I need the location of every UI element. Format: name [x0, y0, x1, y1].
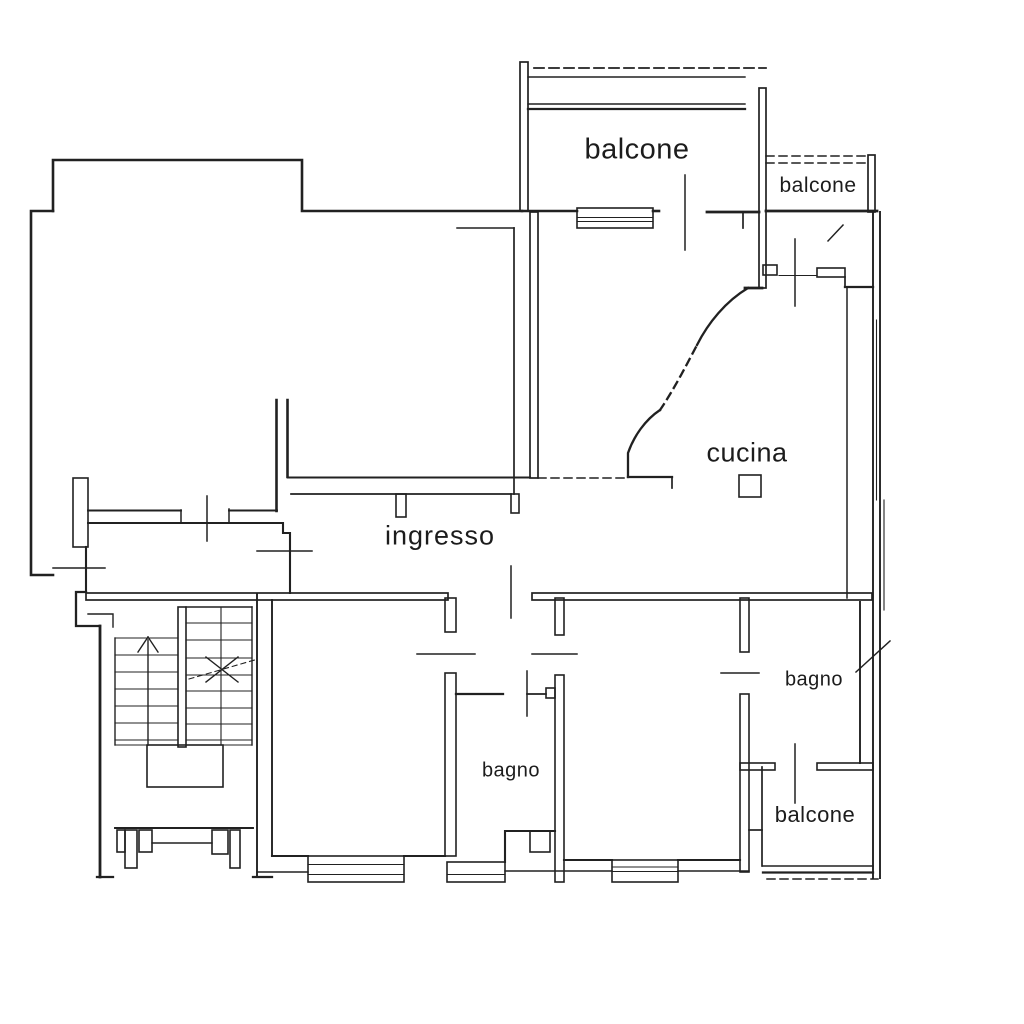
label-balcone-top: balcone — [584, 134, 689, 167]
window-break-tick — [828, 225, 843, 241]
label-ingresso: ingresso — [385, 521, 495, 552]
label-cucina: cucina — [706, 438, 787, 469]
stair-bedroom-wall — [253, 594, 272, 877]
south-facade — [257, 831, 749, 882]
stair-direction-arrow — [138, 637, 158, 745]
stair-break-x — [206, 657, 238, 682]
label-bagno-center: bagno — [482, 760, 540, 783]
stair-stringer — [178, 607, 186, 747]
curved-wall — [697, 288, 748, 345]
living-top-wall — [522, 175, 759, 250]
floorplan-page: balcone balcone cucina ingresso bagno ba… — [0, 0, 1024, 1024]
label-balcone-bottom-right: balcone — [775, 802, 856, 828]
pilaster — [530, 831, 550, 852]
exterior-walls — [31, 160, 522, 575]
kitchen-balcony-door — [763, 239, 873, 306]
window-bathroom-center — [447, 862, 505, 882]
entry-porch — [115, 828, 253, 868]
hall-bedroom-wall — [86, 566, 872, 618]
balcony-top-right — [766, 155, 877, 241]
balcony-top — [520, 62, 766, 288]
bathroom-right-walls — [740, 602, 873, 803]
window-bedroom-left — [308, 856, 404, 882]
porch-pillar — [230, 830, 240, 868]
right-exterior-wall — [847, 212, 890, 878]
porch-pillar — [125, 830, 137, 868]
living-hall-wall — [277, 400, 531, 517]
staircase — [115, 607, 258, 787]
porch-pillar — [212, 830, 228, 854]
balcony-bottom-right — [763, 866, 878, 879]
stove-symbol — [739, 475, 761, 497]
label-balcone-top-right: balcone — [779, 174, 856, 198]
bedroom-partitions — [417, 598, 762, 882]
floorplan-drawing — [0, 0, 1024, 1024]
label-bagno-right: bagno — [785, 669, 843, 692]
porch-pillar — [139, 830, 152, 852]
stair-landing — [147, 745, 223, 787]
landing-corridor — [53, 478, 312, 877]
curved-wall — [628, 410, 660, 477]
pillar — [73, 478, 88, 547]
curved-wall-dashed — [660, 345, 697, 410]
